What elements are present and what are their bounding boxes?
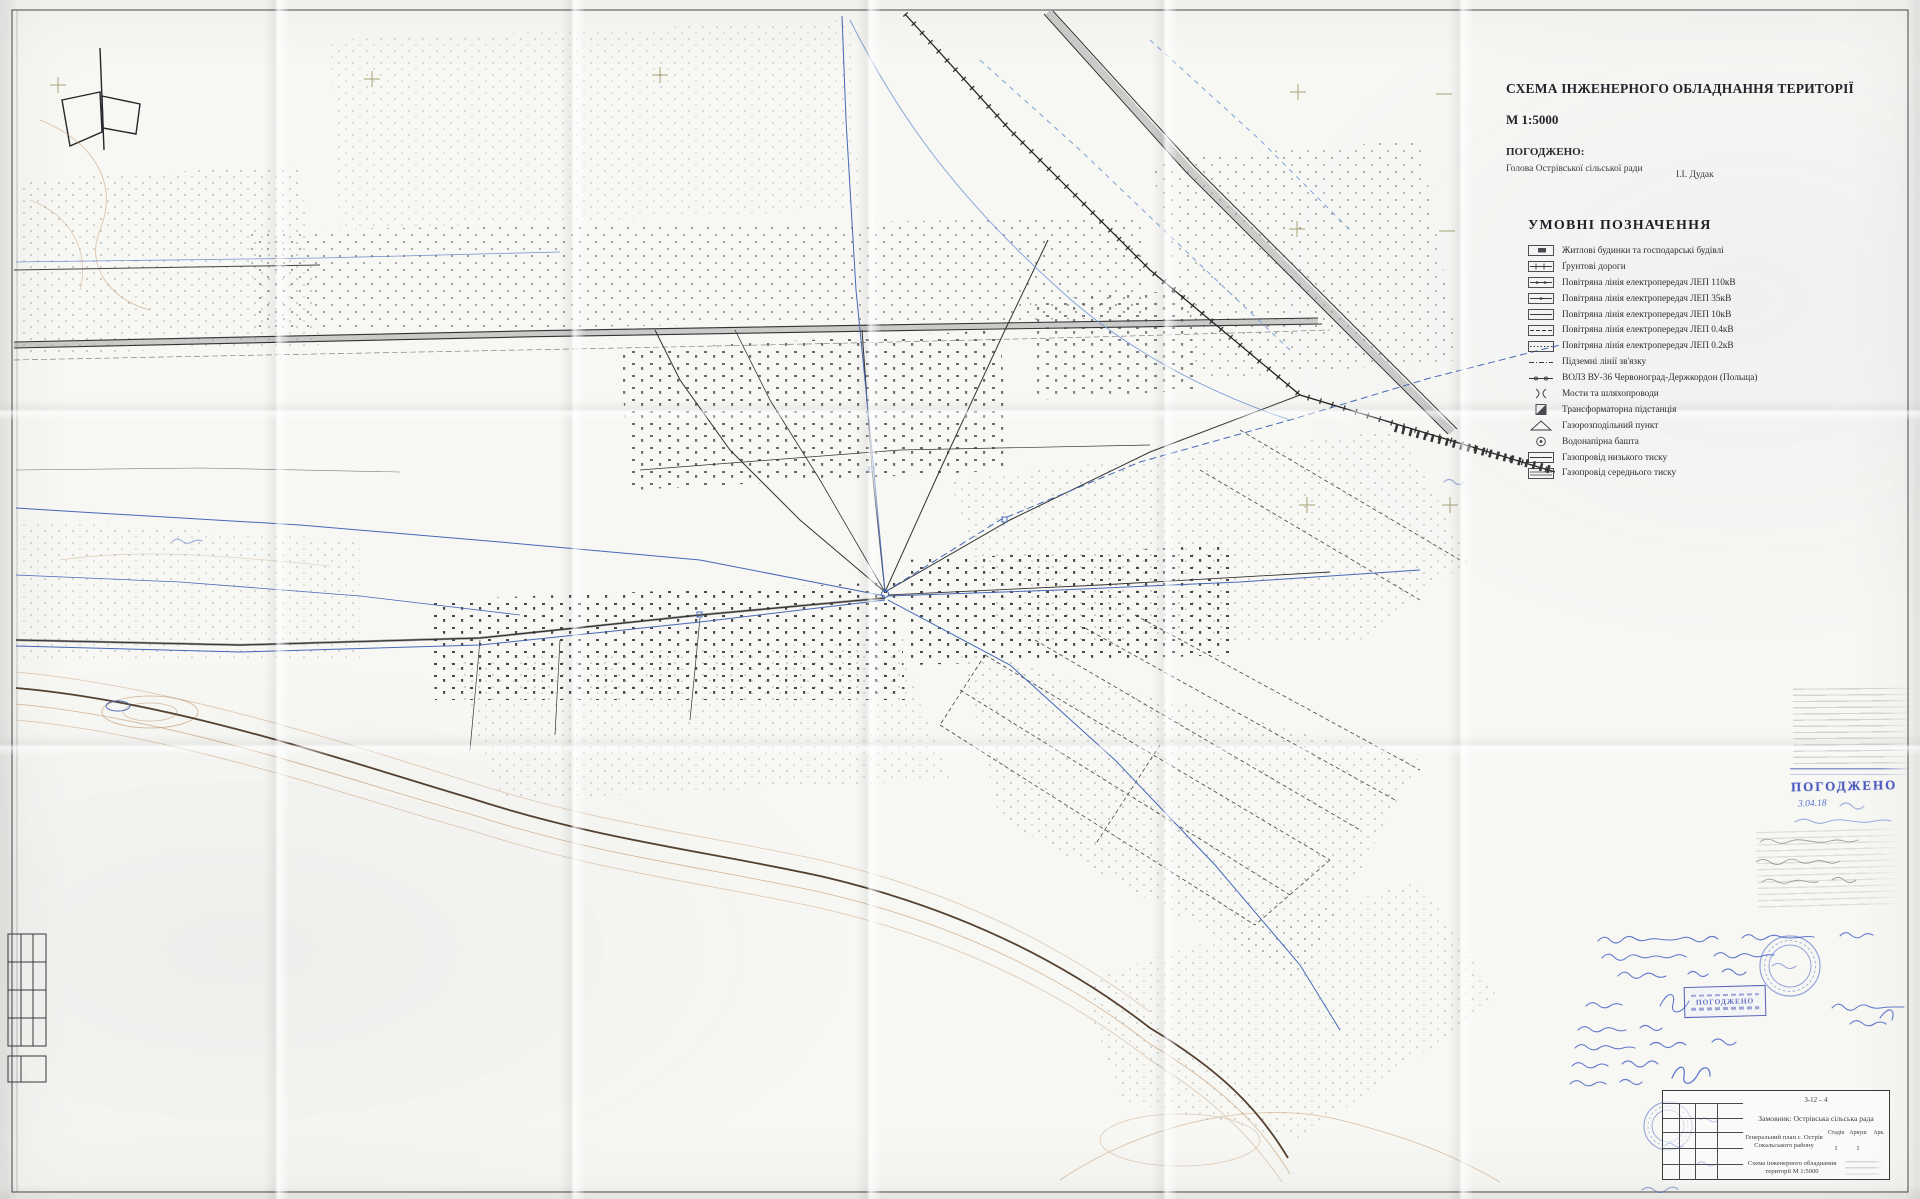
legend-symbol-lep10-icon (1528, 309, 1554, 320)
map-fields (20, 20, 1500, 1140)
title-block-org (1841, 1157, 1889, 1179)
title-block-stage-value: 1 (1825, 1139, 1847, 1157)
legend-label: Мости та шляхопроводи (1562, 389, 1659, 399)
legend-symbol-underground-comm-icon (1528, 357, 1554, 368)
legend-item: Повітряна лінія електропередач ЛЕП 0.4кВ (1528, 322, 1908, 338)
map-canvas (0, 0, 1920, 1199)
page-title: СХЕМА ІНЖЕНЕРНОГО ОБЛАДНАННЯ ТЕРИТОРІЇ (1506, 80, 1920, 98)
legend-item: Повітряна лінія електропередач ЛЕП 35кВ (1528, 291, 1908, 307)
legend-item: Мости та шляхопроводи (1528, 386, 1908, 402)
legend-item: Газопровід низького тиску (1528, 450, 1908, 466)
legend-symbol-lep04-icon (1528, 325, 1554, 336)
legend-symbol-gas-medium-icon (1528, 468, 1554, 479)
title-block-doc-number: З-12 – 4 (1743, 1091, 1889, 1109)
title-block-sheets-value (1869, 1139, 1889, 1157)
title-block-stage-label: Стадія (1825, 1127, 1847, 1139)
round-stamp-icon (1760, 936, 1820, 996)
rect-stamp-text: ПОГОДЖЕНО (1696, 996, 1754, 1007)
legend-label: Підземні лінії зв'язку (1562, 357, 1646, 367)
approved-role: Голова Острівської сільської ради (1506, 164, 1643, 174)
legend-item: Житлові будинки та господарські будівлі (1528, 243, 1908, 259)
legend-label: Повітряна лінія електропередач ЛЕП 35кВ (1562, 294, 1731, 304)
side-table (8, 934, 46, 1082)
legend-symbol-lep110-icon (1528, 277, 1554, 288)
legend-label: Водонапірна башта (1562, 437, 1639, 447)
approval-stamp-text: ПОГОДЖЕНО (1791, 777, 1920, 796)
legend-item: Газорозподільний пункт (1528, 418, 1908, 434)
legend-label: Повітряна лінія електропередач ЛЕП 110кВ (1562, 278, 1736, 288)
title-block-client: Замовник: Острівська сільська рада (1743, 1109, 1889, 1127)
legend-label: ВОЛЗ ВУ-36 Червоноград-Держкордон (Польщ… (1562, 373, 1757, 383)
legend-label: Повітряна лінія електропередач ЛЕП 10кВ (1562, 310, 1731, 320)
legend-label: Трансформаторна підстанція (1562, 405, 1676, 415)
legend-item: Повітряна лінія електропередач ЛЕП 10кВ (1528, 307, 1908, 323)
title-block-sheet-title: Схема інженерного обладнання території М… (1743, 1157, 1841, 1179)
legend-heading: УМОВНІ ПОЗНАЧЕННЯ (1528, 218, 1908, 234)
legend-item: Ґрунтові дороги (1528, 259, 1908, 275)
rect-approval-stamp: ПОГОДЖЕНО (1684, 985, 1767, 1018)
legend-symbol-buildings-icon (1528, 245, 1554, 256)
legend-symbol-lep02-icon (1528, 341, 1554, 352)
title-block-project: Генеральний план с. Острів Сокальського … (1743, 1127, 1825, 1157)
legend-item: Водонапірна башта (1528, 434, 1908, 450)
legend-label: Повітряна лінія електропередач ЛЕП 0.2кВ (1562, 341, 1734, 351)
legend-item: Трансформаторна підстанція (1528, 402, 1908, 418)
legend-item: Підземні лінії зв'язку (1528, 354, 1908, 370)
legend-item: Газопровід середнього тиску (1528, 465, 1908, 481)
legend-label: Газопровід середнього тиску (1562, 468, 1676, 478)
legend-symbol-transformer-icon (1528, 404, 1554, 415)
legend-label: Газорозподільний пункт (1562, 421, 1658, 431)
legend-symbol-lep35-icon (1528, 293, 1554, 304)
title-block-sheets-label: Арк. (1869, 1127, 1889, 1139)
legend-item: Повітряна лінія електропередач ЛЕП 0.2кВ (1528, 338, 1908, 354)
title-block-signature-grid (1663, 1103, 1743, 1180)
legend-label: Житлові будинки та господарські будівлі (1562, 246, 1724, 256)
stamp-line (1691, 1006, 1760, 1010)
approved-name: І.І. Дудак (1676, 170, 1714, 180)
legend-symbol-gas-low-icon (1528, 452, 1554, 463)
title-block-sheet-label: Аркуш (1847, 1127, 1869, 1139)
legend: УМОВНІ ПОЗНАЧЕННЯ Житлові будинки та гос… (1528, 218, 1908, 481)
title-block-sheet-value: 1 (1847, 1139, 1869, 1157)
legend-symbol-fiber-optic-icon (1528, 373, 1554, 384)
legend-label: Повітряна лінія електропередач ЛЕП 0.4кВ (1562, 325, 1734, 335)
legend-label: Ґрунтові дороги (1562, 262, 1626, 272)
title-block: З-12 – 4 Замовник: Острівська сільська р… (1662, 1090, 1890, 1180)
legend-symbol-dirt-road-icon (1528, 261, 1554, 272)
map-scale: М 1:5000 (1506, 112, 1558, 128)
legend-symbol-water-tower-icon (1528, 436, 1554, 447)
legend-item: ВОЛЗ ВУ-36 Червоноград-Держкордон (Польщ… (1528, 370, 1908, 386)
legend-item: Повітряна лінія електропередач ЛЕП 110кВ (1528, 275, 1908, 291)
legend-symbol-gas-point-icon (1528, 420, 1554, 431)
north-arrow-icon (62, 48, 140, 150)
stamp-date: 3.04.18 (1798, 799, 1827, 810)
legend-label: Газопровід низького тиску (1562, 453, 1667, 463)
legend-symbol-bridge-icon (1528, 388, 1554, 399)
scanned-map-sheet: { "header": { "title": "СХЕМА ІНЖЕНЕРНОГ… (0, 0, 1920, 1199)
approved-heading: ПОГОДЖЕНО: (1506, 146, 1584, 158)
